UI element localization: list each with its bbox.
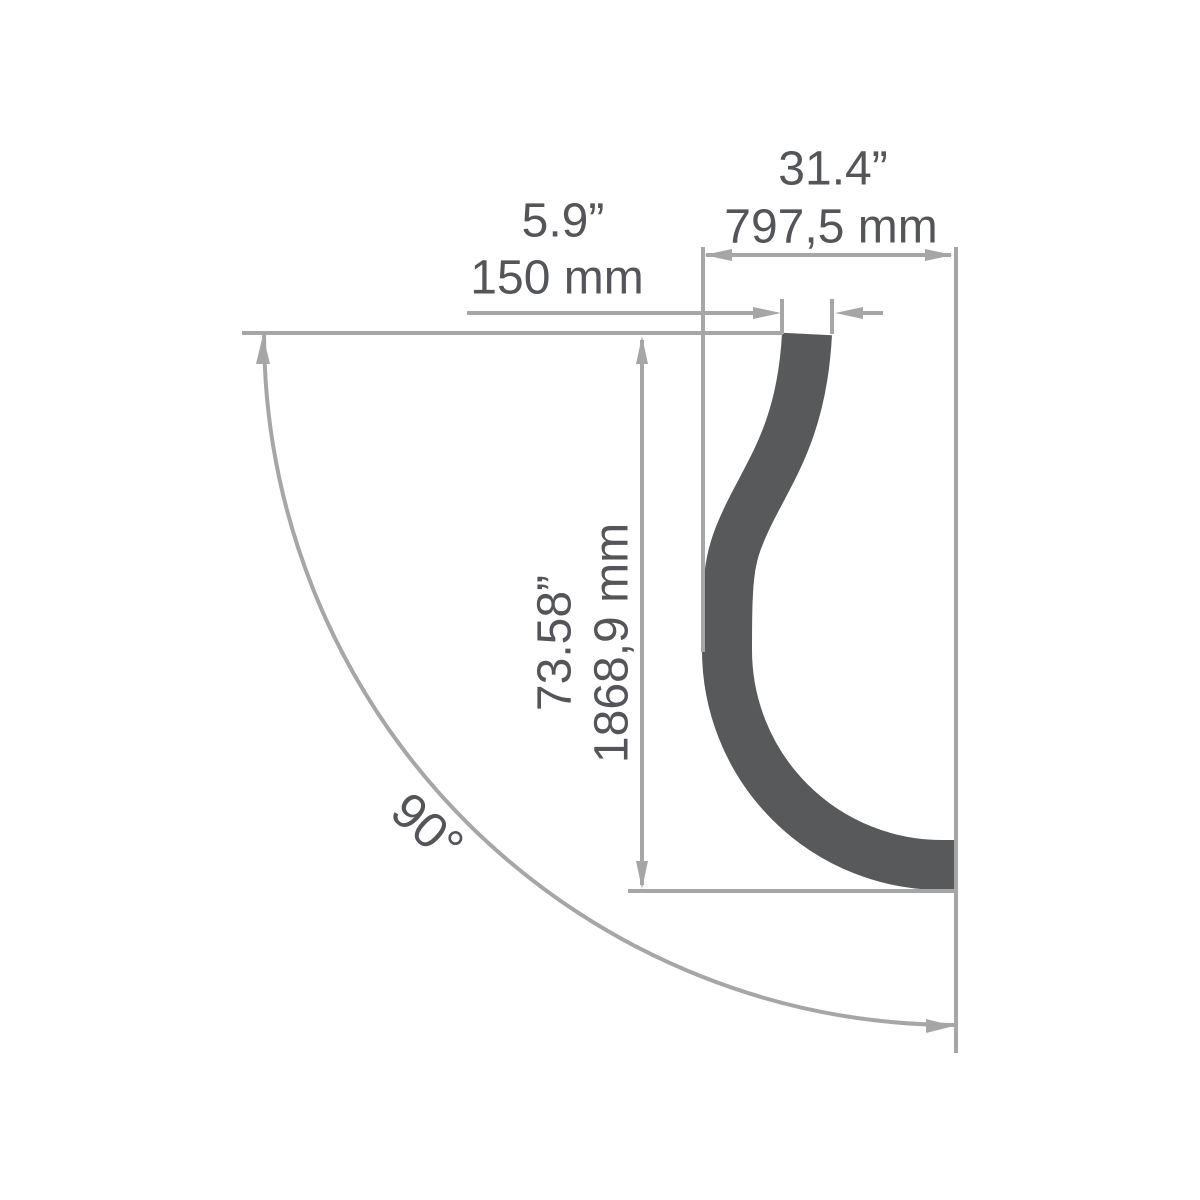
dim-height-arrow-up-icon (636, 336, 648, 364)
bent-profile-shape (727, 334, 957, 865)
arc-arrow-up-icon (256, 335, 270, 364)
label-profile-width-mm: 150 mm (470, 253, 643, 306)
label-profile-width-inches: 5.9” (522, 196, 605, 249)
label-height-inches: 73.58” (527, 523, 584, 763)
label-top-width-inches: 31.4” (778, 144, 887, 197)
dim-150-arrow-right-icon (753, 307, 781, 319)
arc-arrow-right-icon (926, 1019, 954, 1033)
label-height-mm: 1868,9 mm (584, 523, 641, 763)
dim-150-arrow-left-icon (835, 307, 863, 319)
label-top-width-mm: 797,5 mm (724, 202, 937, 255)
dim-height-arrow-down-icon (636, 861, 648, 889)
dimension-drawing-canvas: 31.4” 797,5 mm 5.9” 150 mm 73.58” 1868,9… (0, 0, 1200, 1200)
label-height: 73.58” 1868,9 mm (527, 523, 640, 763)
